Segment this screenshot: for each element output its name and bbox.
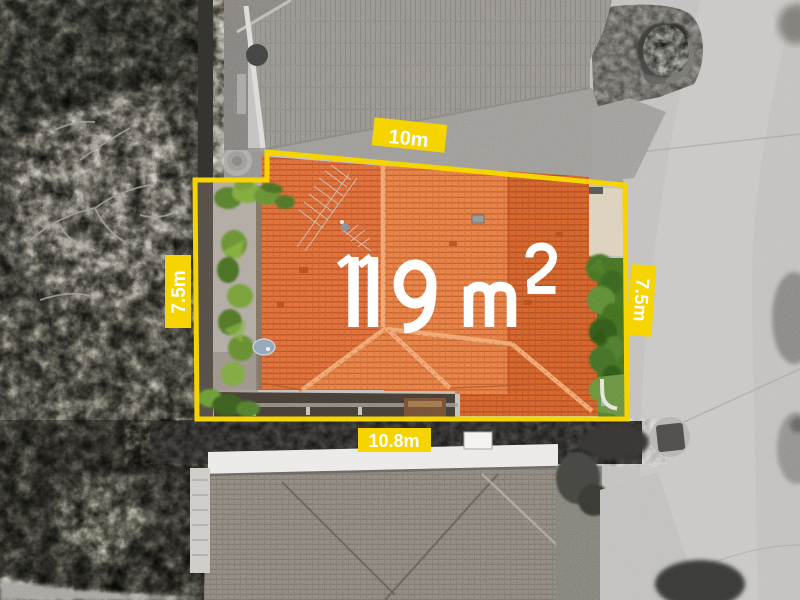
svg-text:7.5m: 7.5m (629, 278, 653, 323)
svg-text:10.8m: 10.8m (368, 431, 419, 451)
svg-text:7.5m: 7.5m (169, 270, 190, 313)
svg-text:10m: 10m (388, 126, 430, 152)
